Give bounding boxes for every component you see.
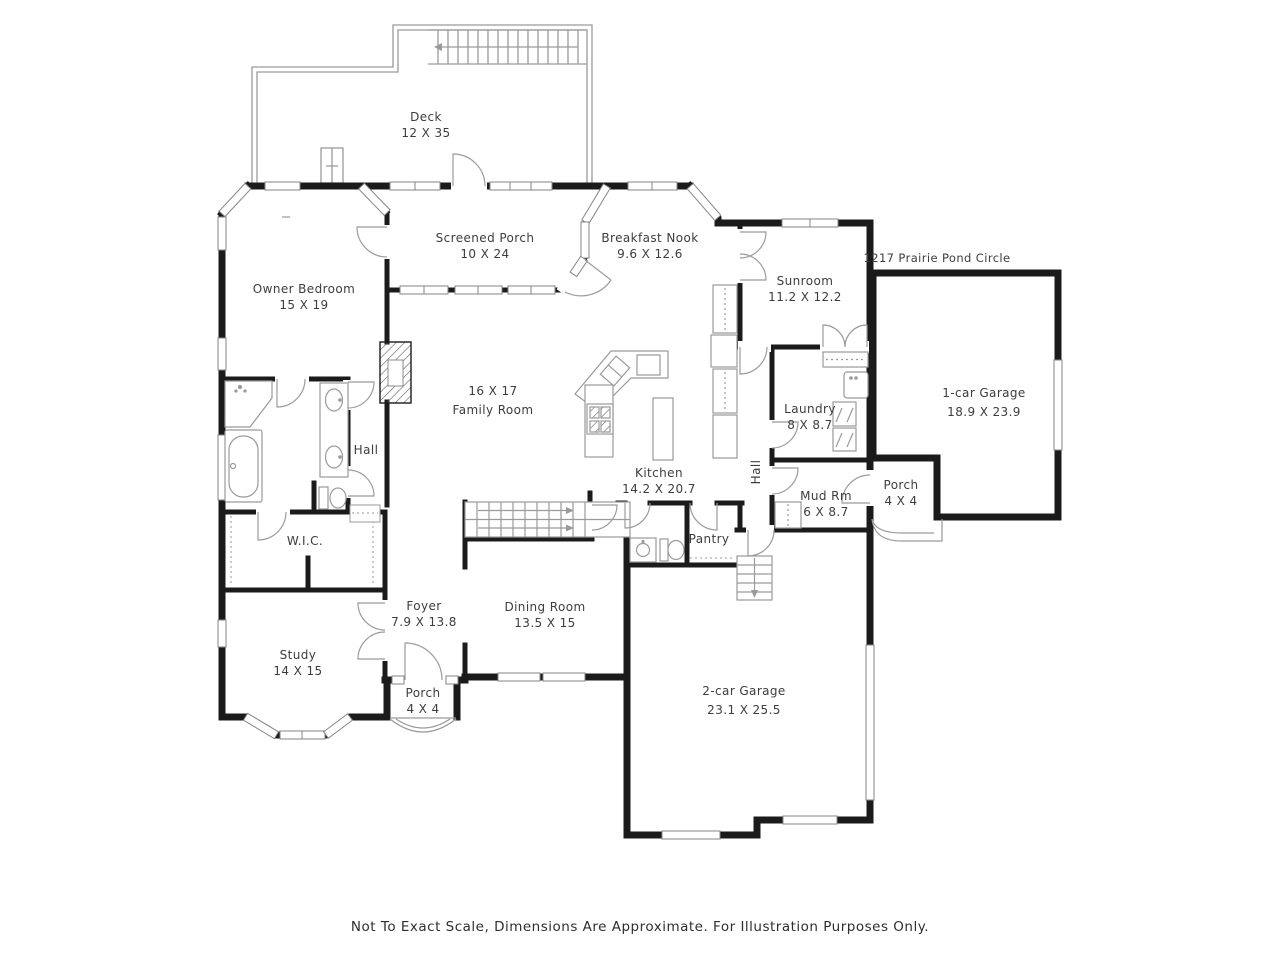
room-name: 1-car Garage — [942, 384, 1025, 403]
room-name: Porch — [883, 477, 918, 493]
room-name: Breakfast Nook — [601, 230, 698, 246]
room-dims: 15 X 19 — [253, 297, 355, 313]
room-name: Screened Porch — [436, 230, 535, 246]
room-name: Hall — [354, 442, 379, 458]
deck-outline — [252, 25, 592, 183]
room-label-foyer: Foyer 7.9 X 13.8 — [391, 598, 457, 630]
room-label-porch-rear: Porch 4 X 4 — [883, 477, 918, 509]
room-dims: 18.9 X 23.9 — [942, 403, 1025, 422]
utility-sink — [844, 372, 868, 398]
room-dims: 14.2 X 20.7 — [622, 481, 696, 497]
toilet-bowl — [330, 488, 346, 508]
room-dims: 11.2 X 12.2 — [768, 289, 842, 305]
room-dims: 8 X 8.7 — [784, 417, 836, 433]
room-label-deck: Deck 12 X 35 — [401, 109, 450, 141]
room-label-owner-bedroom: Owner Bedroom 15 X 19 — [253, 281, 355, 313]
room-dims: 10 X 24 — [436, 246, 535, 262]
kitchen-fixtures — [575, 285, 737, 460]
room-label-kitchen: Kitchen 14.2 X 20.7 — [622, 465, 696, 497]
room-dims: 16 X 17 — [453, 382, 534, 401]
floor-plan-page: Deck 12 X 35 Screened Porch 10 X 24 Brea… — [0, 0, 1280, 960]
room-name: Porch — [405, 685, 440, 701]
address-label: 1217 Prairie Pond Circle — [864, 251, 1011, 265]
room-dims: 13.5 X 15 — [504, 615, 585, 631]
room-label-study: Study 14 X 15 — [273, 647, 322, 679]
room-label-family-room: 16 X 17 Family Room — [453, 382, 534, 420]
room-name: Hall — [748, 460, 764, 485]
toilet-tank — [319, 487, 328, 509]
washer — [833, 402, 856, 426]
room-label-pantry: Pantry — [689, 531, 730, 547]
room-dims: 12 X 35 — [401, 125, 450, 141]
room-name: Study — [273, 647, 322, 663]
room-name: Family Room — [453, 401, 534, 420]
kitchen-island — [653, 398, 673, 460]
room-label-one-car-garage: 1-car Garage 18.9 X 23.9 — [942, 384, 1025, 422]
room-name: Sunroom — [768, 273, 842, 289]
room-dims: 14 X 15 — [273, 663, 322, 679]
room-label-screened-porch: Screened Porch 10 X 24 — [436, 230, 535, 262]
master-bath-fixtures — [225, 381, 348, 509]
room-dims: 9.6 X 12.6 — [601, 246, 698, 262]
refrigerator — [711, 335, 737, 367]
room-name: Deck — [401, 109, 450, 125]
powder-toilet-bowl — [668, 541, 684, 560]
room-label-hall-bath: Hall — [354, 442, 379, 458]
room-label-porch-front: Porch 4 X 4 — [405, 685, 440, 717]
powder-toilet-tank — [660, 539, 668, 561]
main-staircase — [465, 502, 630, 537]
room-name: Foyer — [391, 598, 457, 614]
room-dims: 7.9 X 13.8 — [391, 614, 457, 630]
room-label-wic: W.I.C. — [287, 533, 323, 549]
room-name: Dining Room — [504, 599, 585, 615]
disclaimer-text: Not To Exact Scale, Dimensions Are Appro… — [351, 919, 929, 935]
room-label-breakfast-nook: Breakfast Nook 9.6 X 12.6 — [601, 230, 698, 262]
room-label-sunroom: Sunroom 11.2 X 12.2 — [768, 273, 842, 305]
room-label-two-car-garage: 2-car Garage 23.1 X 25.5 — [702, 682, 785, 720]
room-dims: 23.1 X 25.5 — [702, 701, 785, 720]
room-dims: 4 X 4 — [883, 493, 918, 509]
room-name: Owner Bedroom — [253, 281, 355, 297]
dryer — [833, 428, 856, 451]
room-dims: 6 X 8.7 — [800, 504, 852, 520]
fireplace — [380, 342, 411, 403]
room-name: 2-car Garage — [702, 682, 785, 701]
room-name: Pantry — [689, 531, 730, 547]
room-name: Laundry — [784, 401, 836, 417]
room-label-hall-rear: Hall — [748, 460, 764, 485]
room-dims: 4 X 4 — [405, 701, 440, 717]
room-label-dining-room: Dining Room 13.5 X 15 — [504, 599, 585, 631]
room-name: Kitchen — [622, 465, 696, 481]
room-label-mud-room: Mud Rm 6 X 8.7 — [800, 488, 852, 520]
shower — [225, 381, 272, 427]
room-name: Mud Rm — [800, 488, 852, 504]
powder-room-fixtures — [630, 538, 684, 562]
room-label-laundry: Laundry 8 X 8.7 — [784, 401, 836, 433]
room-name: W.I.C. — [287, 533, 323, 549]
